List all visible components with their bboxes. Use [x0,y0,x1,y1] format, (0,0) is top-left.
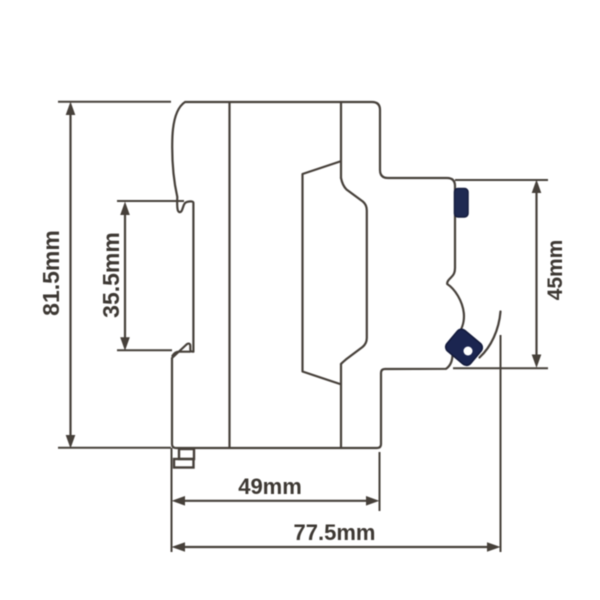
svg-text:81.5mm: 81.5mm [38,230,64,316]
svg-text:45mm: 45mm [544,240,567,301]
svg-text:77.5mm: 77.5mm [294,520,376,545]
svg-text:35.5mm: 35.5mm [98,232,124,318]
svg-text:49mm: 49mm [238,474,302,499]
